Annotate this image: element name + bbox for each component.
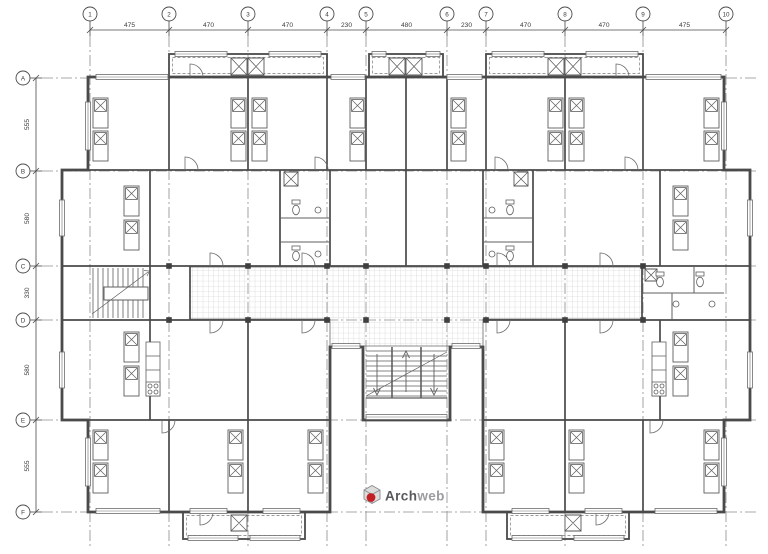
left-dimension-value: 555 (24, 460, 31, 471)
structural-column (324, 317, 330, 323)
grid-row-bubble-label: B (21, 168, 25, 175)
bed-symbol (451, 98, 466, 128)
grid-column-bubble-label: 6 (445, 11, 449, 18)
top-dimension-value: 470 (520, 22, 531, 29)
bed-symbol (569, 463, 584, 493)
logo-red-dot (367, 493, 376, 502)
bed-symbol (124, 186, 139, 216)
archweb-logo: Archweb (364, 486, 445, 504)
grid-column-bubble-label: 10 (722, 11, 730, 18)
door-arc (600, 253, 613, 266)
drawing-sheet: 14752470347042305480623074708470947510 A… (0, 0, 768, 554)
bed-symbol (704, 98, 719, 128)
structural-column (363, 263, 369, 269)
toilet-symbol (506, 200, 514, 215)
bed-symbol (93, 463, 108, 493)
grid-row-bubble-label: C (21, 263, 26, 270)
bed-symbol (228, 430, 243, 460)
door-arc (185, 157, 198, 170)
bed-symbol (228, 463, 243, 493)
bed-symbol (548, 98, 563, 128)
toilet-symbol (506, 246, 514, 261)
door-arc (302, 320, 315, 333)
door-arc (625, 157, 638, 170)
structural-column (166, 317, 172, 323)
bed-symbol (252, 98, 267, 128)
bed-symbol (124, 220, 139, 250)
structural-column (166, 263, 172, 269)
bed-symbol (308, 463, 323, 493)
door-arc (495, 157, 508, 170)
grid-column-bubble-label: 8 (563, 11, 567, 18)
bed-symbol (673, 186, 688, 216)
bed-symbol (569, 98, 584, 128)
left-dimension-value: 580 (24, 364, 31, 375)
top-dimension-value: 230 (341, 22, 352, 29)
sink-symbol (489, 207, 495, 213)
top-dimension-value: 480 (401, 22, 412, 29)
bed-symbol (673, 332, 688, 362)
sink-symbol (489, 251, 495, 257)
bed-symbol (350, 131, 365, 161)
structural-column (483, 317, 489, 323)
bed-symbol (93, 98, 108, 128)
grid-column-bubble-label: 2 (167, 11, 171, 18)
door-arc (210, 320, 223, 333)
top-dimension-value: 475 (679, 22, 690, 29)
structural-column (245, 263, 251, 269)
grid-column-bubble-label: 4 (325, 11, 329, 18)
floor-plan-svg: 14752470347042305480623074708470947510 A… (0, 0, 768, 554)
left-dimension-value: 330 (24, 287, 31, 298)
grid-column-bubble-label: 9 (641, 11, 645, 18)
toilet-symbol (292, 246, 300, 261)
top-dimension-value: 470 (598, 22, 609, 29)
sink-symbol (673, 301, 679, 307)
door-arc (210, 253, 223, 266)
door-arc (650, 420, 663, 433)
side-staircase (92, 268, 150, 318)
grid-column-bubble-label: 3 (246, 11, 250, 18)
structural-column (483, 263, 489, 269)
logo-cube-icon (364, 486, 380, 504)
bed-symbol (548, 131, 563, 161)
structural-column (640, 263, 646, 269)
bed-symbol (489, 463, 504, 493)
bed-symbol (451, 131, 466, 161)
bed-symbol (489, 430, 504, 460)
grid-row-bubble-label: F (21, 509, 25, 516)
sink-symbol (709, 301, 715, 307)
toilet-symbol (696, 272, 704, 287)
door-arc (497, 320, 510, 333)
bed-symbol (350, 98, 365, 128)
door-arc (600, 320, 613, 333)
bed-symbol (231, 98, 246, 128)
structural-column (562, 317, 568, 323)
bed-symbol (124, 332, 139, 362)
logo-text-arch: Arch (385, 489, 417, 504)
door-arc (596, 512, 609, 525)
kitchen-unit-right (652, 342, 666, 396)
left-dimension-string: A555B580C330D580E555F (16, 71, 42, 519)
bed-symbol (124, 366, 139, 396)
sink-symbol (315, 207, 321, 213)
grid-row-bubble-label: D (21, 317, 26, 324)
central-staircase (366, 347, 447, 398)
top-dimension-value: 475 (124, 22, 135, 29)
bed-symbol (704, 430, 719, 460)
door-arc (200, 512, 213, 525)
door-arc (302, 253, 315, 266)
structural-column (562, 263, 568, 269)
hatched-corridor (190, 267, 642, 346)
toilet-symbol (292, 200, 300, 215)
bed-symbol (673, 220, 688, 250)
bed-symbol (252, 131, 267, 161)
grid-row-bubble-label: E (21, 417, 25, 424)
bed-symbol (704, 131, 719, 161)
bed-symbol (93, 430, 108, 460)
top-dimension-value: 470 (282, 22, 293, 29)
top-dimension-string: 14752470347042305480623074708470947510 (83, 7, 733, 36)
top-dimension-value: 230 (461, 22, 472, 29)
bed-symbol (231, 131, 246, 161)
sink-symbol (315, 251, 321, 257)
bed-symbol (93, 131, 108, 161)
top-dimension-value: 470 (203, 22, 214, 29)
bed-symbol (308, 430, 323, 460)
left-dimension-value: 555 (24, 119, 31, 130)
structural-column (363, 317, 369, 323)
door-arc (315, 157, 328, 170)
structural-column (640, 317, 646, 323)
bed-symbol (569, 430, 584, 460)
door-arc (616, 64, 629, 77)
logo-text-web: web (416, 489, 444, 504)
grid-column-bubble-label: 5 (364, 11, 368, 18)
stove-symbol (146, 382, 160, 396)
structural-column (324, 263, 330, 269)
grid-column-bubble-label: 7 (484, 11, 488, 18)
stove-symbol (652, 382, 666, 396)
grid-column-bubble-label: 1 (88, 11, 92, 18)
left-dimension-value: 580 (24, 213, 31, 224)
logo-text: Archweb (385, 489, 445, 504)
door-arc (190, 64, 203, 77)
kitchen-unit-left (146, 342, 160, 396)
toilet-symbol (656, 272, 664, 287)
structural-column (444, 263, 450, 269)
bed-symbol (569, 131, 584, 161)
structural-column (245, 317, 251, 323)
structural-column (444, 317, 450, 323)
bed-symbol (673, 366, 688, 396)
bed-symbol (704, 463, 719, 493)
